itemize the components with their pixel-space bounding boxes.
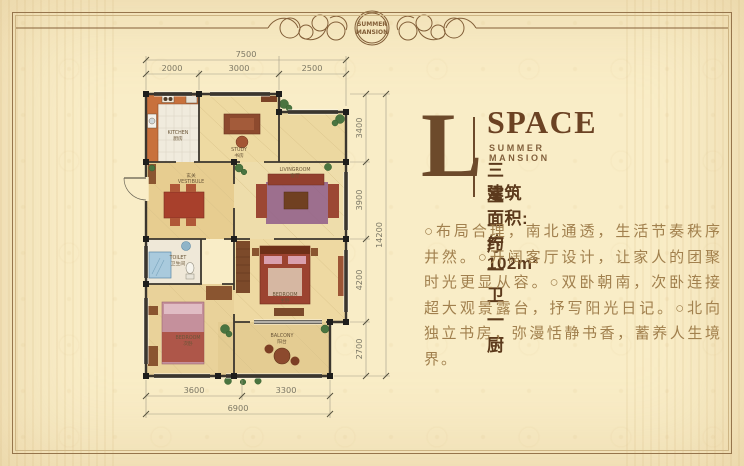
dim-top-seg1: 2000 <box>162 63 183 73</box>
dim-bot-seg2: 3300 <box>276 385 297 395</box>
dim-right-seg3: 4200 <box>354 270 364 291</box>
toilet-label-zh: 卫生间 <box>171 260 186 267</box>
living-label-zh: 客厅 <box>290 172 300 179</box>
kitchen-label-en: KITCHEN <box>168 130 189 136</box>
dim-right-total: 14200 <box>374 222 384 248</box>
living-label-en: LIVINGROOM <box>279 167 310 173</box>
dim-right-seg2: 3900 <box>354 190 364 211</box>
dim-bot-total: 6900 <box>228 403 249 413</box>
entry-door <box>124 177 149 201</box>
floorplan: KITCHEN 厨房 STUDY 书房 玄关 VESTIBULE LIVINGR… <box>98 46 428 451</box>
dim-top-total: 7500 <box>236 49 257 59</box>
dim-top-seg2: 3000 <box>229 63 250 73</box>
balcony-label-en: BALCONY <box>271 333 294 339</box>
title-divider <box>473 117 475 197</box>
medallion-text-line2: MANSION <box>356 29 388 36</box>
study-label-zh: 书房 <box>234 152 244 159</box>
vestibule-label-en: VESTIBULE <box>178 179 204 185</box>
medallion-circle <box>355 11 389 45</box>
master-label-zh: 主卧 <box>280 297 290 304</box>
balcony-label-zh: 阳台 <box>277 338 287 345</box>
floorplan-drawing: KITCHEN 厨房 STUDY 书房 玄关 VESTIBULE LIVINGR… <box>98 46 428 451</box>
dim-top-seg3: 2500 <box>302 63 323 73</box>
flourish-swirls-right <box>397 15 476 40</box>
bedroom2-label-en: BEDROOM <box>175 335 200 341</box>
study-label-en: STUDY <box>231 147 247 153</box>
flourish-swirls-left <box>268 15 347 40</box>
dim-bot-seg1: 3600 <box>184 385 205 395</box>
dim-right-seg4: 2700 <box>354 339 364 360</box>
medallion-text-line1: SUMMER <box>357 21 387 28</box>
bedroom2-label-zh: 次卧 <box>183 340 193 347</box>
master-label-en: BEDROOM <box>272 292 297 298</box>
brochure-page: SUMMER MANSION <box>0 0 744 466</box>
dim-right-seg1: 3400 <box>354 118 364 139</box>
toilet-label-en: TOILET <box>169 255 187 261</box>
vestibule-label-zh: 玄关 <box>186 172 196 179</box>
space-title: SPACE <box>487 104 597 141</box>
description-paragraph: ○布局合理，南北通透，生活节奏秩序井然。○开阔客厅设计，让家人的团聚时光更显从容… <box>424 219 722 372</box>
kitchen-label-zh: 厨房 <box>173 135 183 142</box>
